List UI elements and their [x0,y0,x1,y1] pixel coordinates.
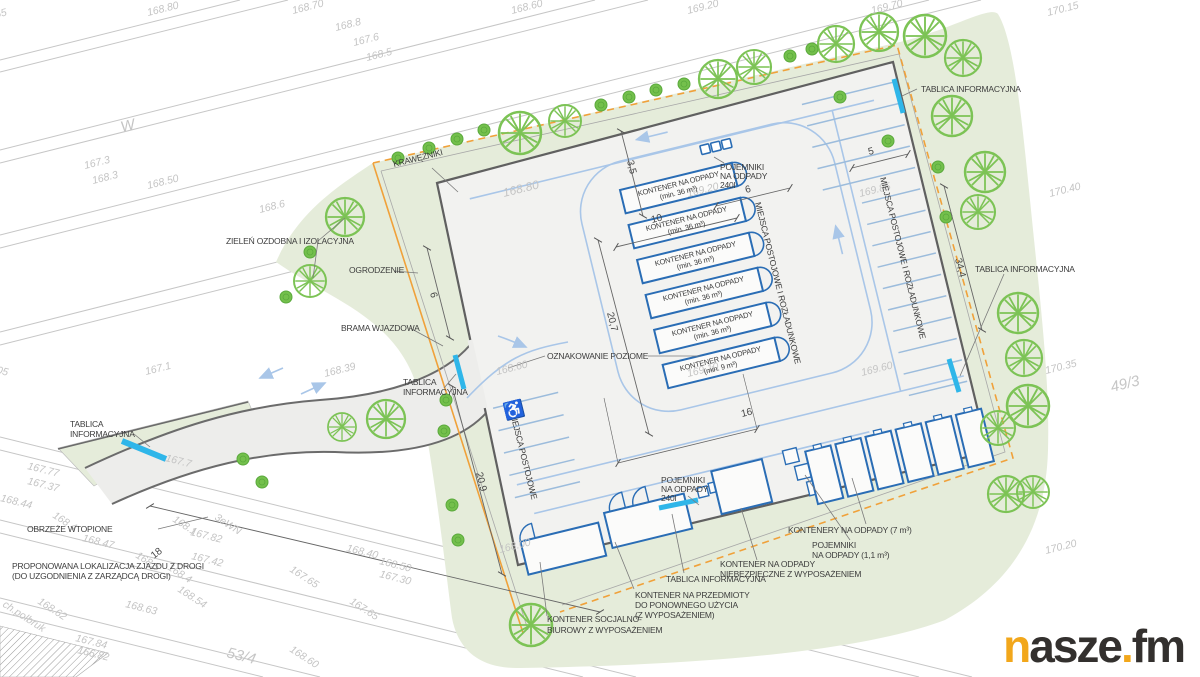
elevation-label: 167.6 [352,31,381,49]
annotation-label: TABLICA [403,377,437,387]
elevation-label: 168.6 [258,198,287,216]
annotation-label: TABLICA INFORMACYJNA [921,84,1021,94]
elevation-label: 167.65 [287,563,321,591]
annotation-label: BRAMA WJAZDOWA [341,323,420,333]
elevation-label: 168.70 [291,0,325,17]
annotation-label: 240l [661,493,677,503]
annotation-label: TABLICA INFORMACYJNA [975,264,1075,274]
parcel-label: 53/4 [225,644,257,668]
elevation-label: 170.20 [1044,537,1078,556]
elevation-label: 168.50 [146,172,180,191]
annotation-label: ZIELEŃ OZDOBNA I IZOLACYJNA [226,236,354,246]
elevation-label: 170.35 [1044,357,1078,376]
elevation-label: 168.44 [0,492,33,511]
elevation-label: 65 [0,6,8,21]
annotation-label: OGRODZENIE [349,265,405,275]
annotation-label: KONTENER NA PRZEDMIOTY [635,590,750,600]
logo-n: n [1003,623,1029,669]
annotation-label: TABLICA INFORMACYJNA [666,574,766,584]
elevation-label: 168.8 [334,16,363,34]
annotation-label: INFORMACYJNA [403,387,468,397]
annotation-label: PROPONOWANA LOKALIZACJA ZJAZDU Z DROGI [12,561,204,571]
elevation-label: 170.15 [1046,0,1080,19]
elevation-label: 168.47 [81,532,116,552]
elevation-label: 167.65 [347,595,381,623]
annotation-label: KONTENERY NA ODPADY (7 m³) [788,525,912,535]
annotation-label: OBRZEŻE WTOPIONE [27,524,113,534]
parcel-label: 49/3 [1109,372,1142,396]
elevation-label: 168.62 [35,595,69,623]
site-plan-drawing: 65168.80168.70168.8167.6168.5168.60169.2… [0,0,1200,677]
elevation-label: 167.82 [189,526,223,545]
annotation-label: TABLICA [70,419,104,429]
site-plan-page: 65168.80168.70168.8167.6168.5168.60169.2… [0,0,1200,677]
logo-dot: . [1121,623,1132,669]
elevation-label: 170.40 [1048,180,1082,199]
elevation-label: 168.5 [365,46,394,64]
annotation-label: (DO UZGODNIENIA Z ZARZĄDCĄ DROGI) [12,571,171,581]
elevation-label: 168.60 [287,643,321,671]
elevation-label: W [119,116,139,136]
annotation-label: (Z WYPOSAŻENIEM) [635,610,715,620]
logo-asze: asze [1029,623,1121,669]
elevation-label: 168.39 [323,360,357,379]
elevation-label: 168.54 [175,583,209,611]
elevation-label: 169.20 [686,0,720,17]
annotation-label: KONTENER NA ODPADY [720,559,815,569]
elevation-label: 168.3 [91,169,120,187]
elevation-label: 05 [0,364,10,379]
elevation-label: 168.63 [124,598,158,617]
logo-fm: fm [1132,623,1184,669]
elevation-label: 167.1 [144,360,172,378]
elevation-label: 168.40 [345,542,379,561]
nasze-fm-logo: nasze.fm [1003,623,1184,669]
annotation-label: OZNAKOWANIE POZIOME [547,351,649,361]
annotation-label: NA ODPADY (1,1 m³) [812,550,890,560]
bin-1-1m3 [782,448,799,465]
annotation-label: BIUROWY Z WYPOSAŻENIEM [547,625,663,635]
elevation-label: 167.3 [83,154,112,172]
annotation-label: INFORMACYJNA [70,429,135,439]
annotation-label: DO PONOWNEGO UŻYCIA [635,600,738,610]
annotation-label: POJEMNIKI [812,540,856,550]
annotation-label: KONTENER SOCJALNO- [547,614,642,624]
annotation-label: 240l [720,180,736,190]
